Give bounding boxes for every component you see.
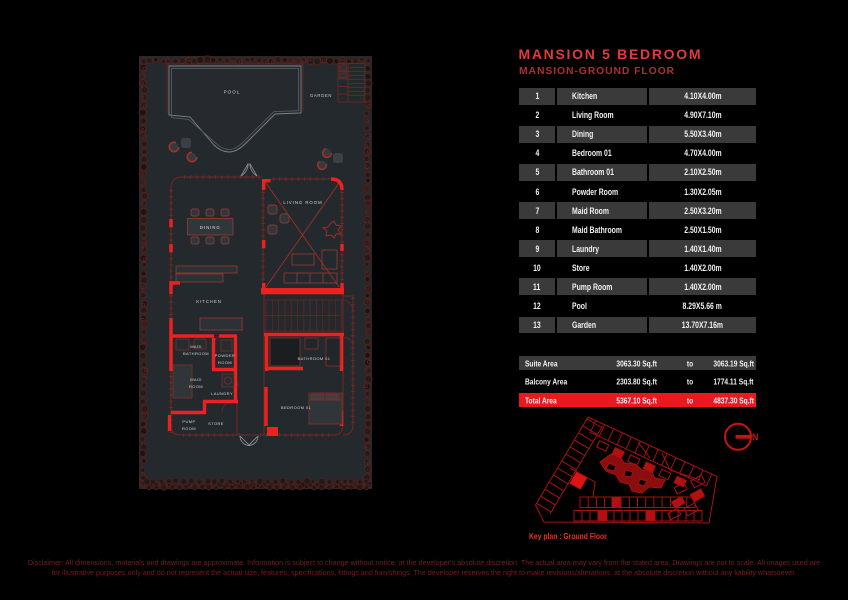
svg-text:POOL: POOL	[224, 90, 241, 95]
svg-text:ROOM: ROOM	[218, 360, 232, 365]
svg-text:N: N	[752, 432, 759, 442]
svg-text:KITCHEN: KITCHEN	[196, 299, 222, 304]
svg-text:ROOM: ROOM	[182, 426, 196, 431]
svg-text:LIVING ROOM: LIVING ROOM	[283, 200, 322, 205]
svg-text:DINING: DINING	[200, 225, 221, 230]
svg-text:BEDROOM 01: BEDROOM 01	[281, 405, 312, 410]
svg-text:LAUNDRY: LAUNDRY	[211, 391, 233, 396]
svg-text:MAID: MAID	[190, 377, 202, 382]
svg-text:POWDER: POWDER	[215, 353, 235, 358]
svg-text:BATHROOM 01: BATHROOM 01	[298, 356, 331, 361]
svg-text:MAID: MAID	[190, 344, 202, 349]
svg-text:GARDEN: GARDEN	[310, 93, 332, 98]
svg-text:PUMP: PUMP	[182, 419, 195, 424]
svg-text:STORE: STORE	[208, 421, 224, 426]
svg-text:BATHROOM: BATHROOM	[183, 351, 209, 356]
svg-text:ROOM: ROOM	[189, 384, 203, 389]
